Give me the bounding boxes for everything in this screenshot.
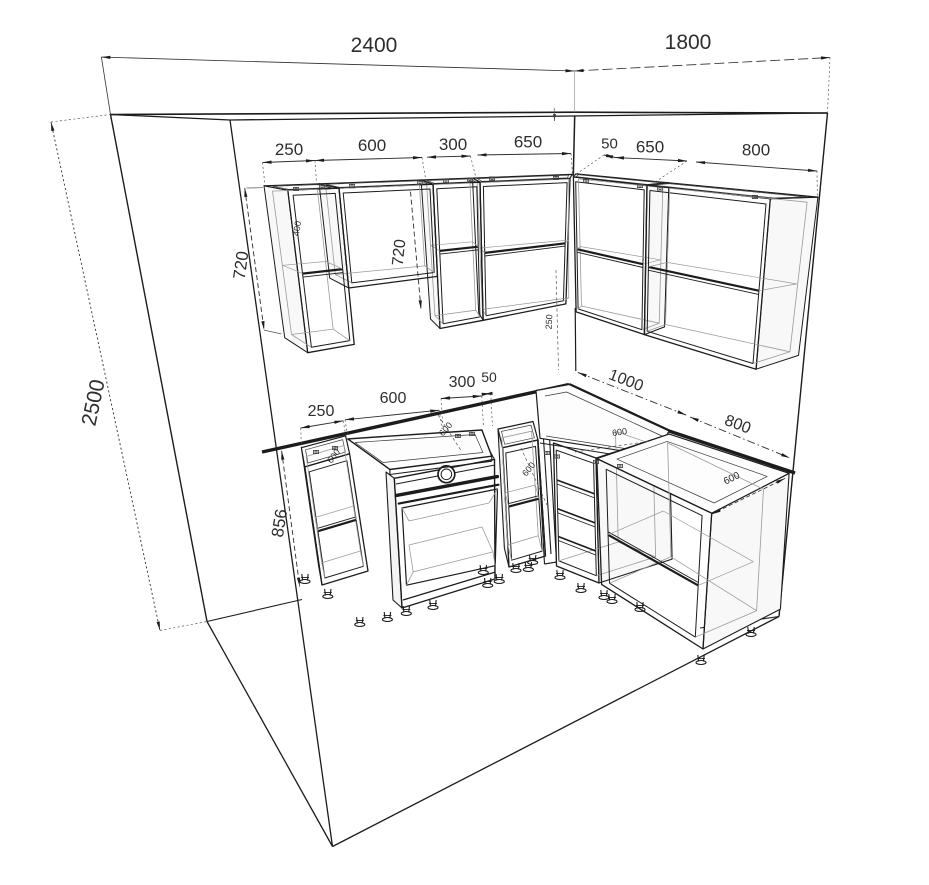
svg-text:600: 600 (380, 390, 407, 407)
svg-text:250: 250 (308, 403, 335, 420)
svg-text:250: 250 (544, 314, 555, 330)
svg-text:720: 720 (390, 238, 410, 266)
svg-text:1800: 1800 (665, 31, 712, 54)
svg-text:650: 650 (514, 133, 542, 152)
svg-text:720: 720 (230, 250, 253, 281)
svg-text:50: 50 (481, 369, 497, 385)
svg-text:600: 600 (358, 136, 386, 155)
svg-text:2400: 2400 (351, 34, 398, 57)
svg-text:250: 250 (275, 140, 303, 159)
svg-text:300: 300 (439, 135, 467, 154)
svg-text:300: 300 (449, 374, 476, 391)
svg-text:650: 650 (636, 138, 664, 157)
svg-text:800: 800 (742, 141, 770, 160)
svg-text:50: 50 (601, 136, 618, 153)
